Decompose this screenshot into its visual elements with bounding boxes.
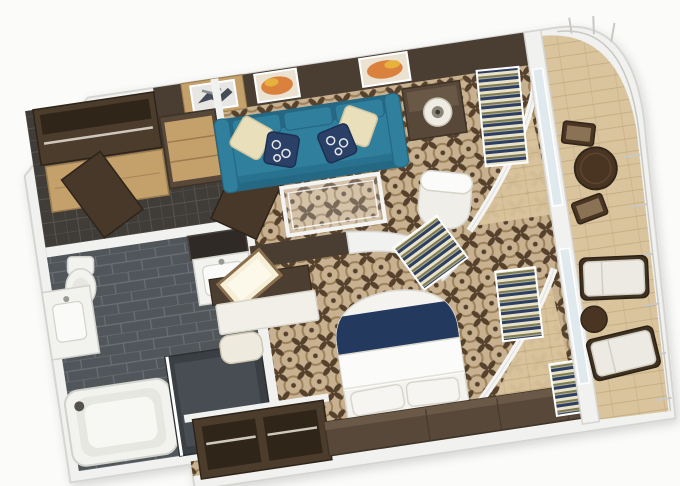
orange-wall-art-2: [359, 52, 411, 87]
left-sink: [52, 301, 87, 343]
left-vanity: [42, 285, 100, 359]
stool: [219, 331, 265, 365]
lounge-chair-upper: [579, 255, 649, 300]
side-table: [402, 81, 467, 141]
curtain-bundle-top: [477, 67, 528, 167]
white-desk-chair: [416, 170, 473, 231]
floorplan-canvas: [0, 0, 680, 486]
bathtub: [63, 377, 179, 468]
curtain-bundle-right: [495, 267, 543, 341]
navy-pattern-pillow-left: [263, 131, 300, 168]
bed-pillow-right: [406, 377, 460, 407]
floorplan-stage: [0, 0, 680, 486]
dining-chair-top: [561, 121, 595, 146]
orange-wall-art-1: [254, 69, 300, 103]
